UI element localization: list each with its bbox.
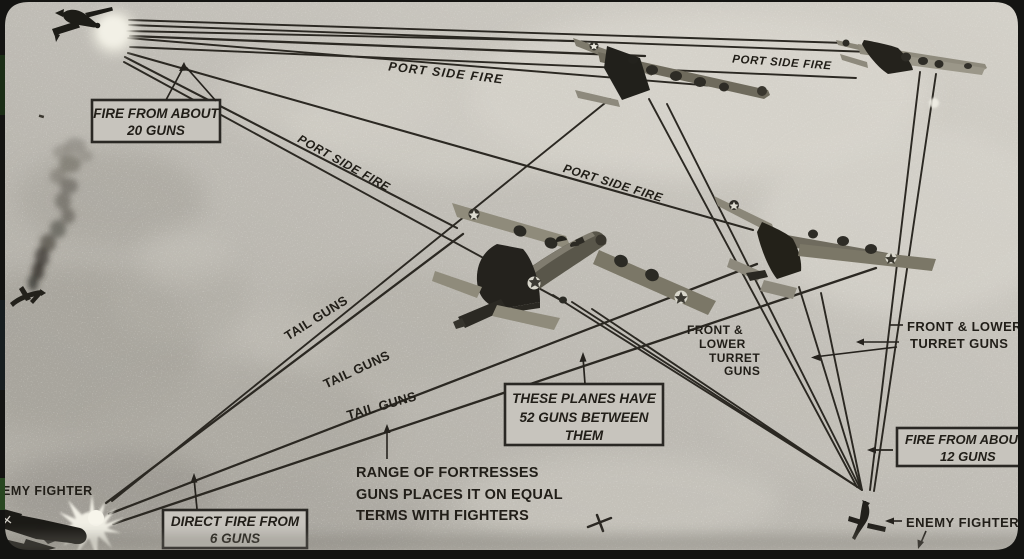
svg-text:GUNS PLACES IT ON EQUAL: GUNS PLACES IT ON EQUAL	[356, 487, 563, 503]
svg-text:THEM: THEM	[565, 428, 604, 443]
svg-text:FIRE FROM ABOUT: FIRE FROM ABOUT	[905, 432, 1024, 447]
svg-text:TURRET GUNS: TURRET GUNS	[910, 336, 1008, 351]
svg-text:ENEMY FIGHTER: ENEMY FIGHTER	[906, 515, 1019, 530]
svg-text:LOWER: LOWER	[699, 337, 746, 351]
svg-text:20 GUNS: 20 GUNS	[126, 123, 185, 138]
svg-text:FRONT &: FRONT &	[687, 323, 743, 337]
svg-text:EMY FIGHTER: EMY FIGHTER	[2, 484, 93, 498]
svg-text:52 GUNS BETWEEN: 52 GUNS BETWEEN	[519, 410, 648, 425]
svg-text:RANGE OF FORTRESSES: RANGE OF FORTRESSES	[356, 465, 539, 481]
svg-text:THESE PLANES HAVE: THESE PLANES HAVE	[512, 391, 657, 406]
svg-text:FRONT & LOWER: FRONT & LOWER	[907, 319, 1022, 334]
svg-text:12 GUNS: 12 GUNS	[940, 449, 996, 464]
svg-text:FIRE FROM ABOUT: FIRE FROM ABOUT	[93, 106, 220, 121]
svg-text:DIRECT FIRE FROM: DIRECT FIRE FROM	[171, 514, 300, 529]
svg-text:GUNS: GUNS	[724, 364, 760, 378]
svg-text:TERMS WITH FIGHTERS: TERMS WITH FIGHTERS	[356, 508, 529, 524]
svg-text:TURRET: TURRET	[709, 351, 760, 365]
